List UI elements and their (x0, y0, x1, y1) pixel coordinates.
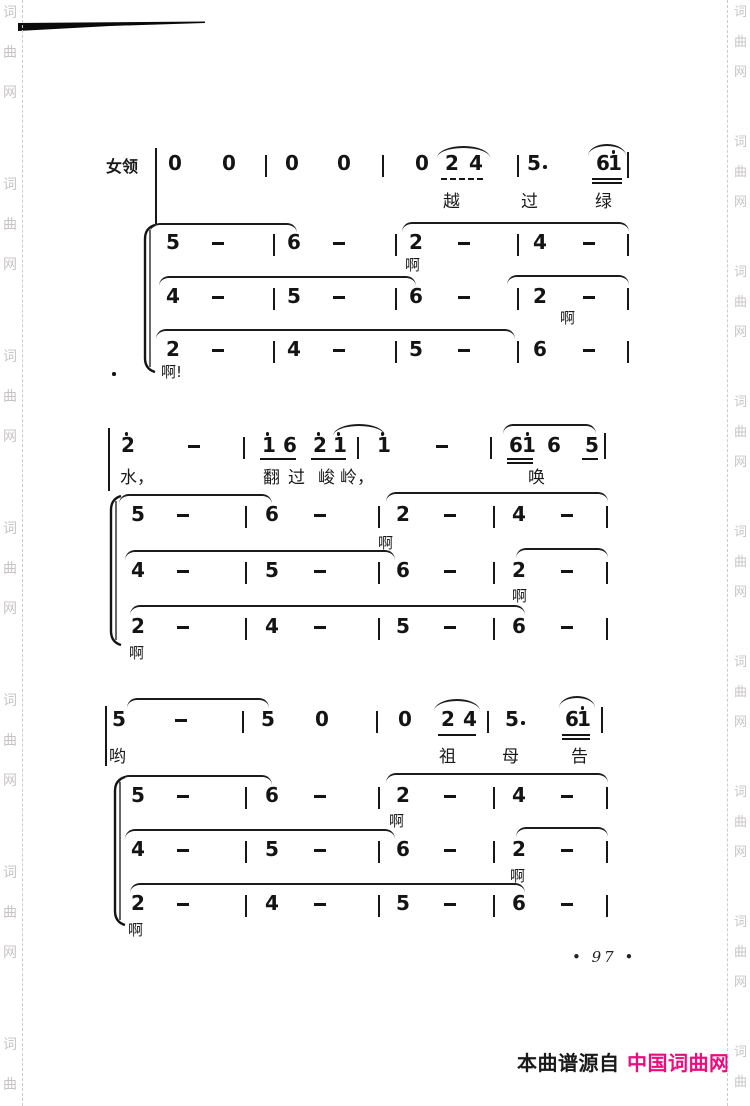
watermark-char: 词 (734, 656, 747, 669)
watermark-char: 网 (734, 196, 747, 209)
choir-brace (112, 776, 127, 926)
watermark-char: 网 (3, 946, 17, 960)
watermark-char: 词 (734, 1046, 747, 1059)
lyric-text: 啊 (405, 258, 420, 273)
sustain-dash (561, 849, 573, 852)
scan-artifact-shape (18, 22, 205, 32)
beam-underline (592, 178, 622, 180)
choir-brace (142, 224, 157, 373)
phrase-slur (402, 222, 629, 232)
note-digit: 2 (512, 560, 526, 580)
watermark-char: 网 (734, 66, 747, 79)
note-digit: 2 (512, 839, 526, 859)
watermark-char: 网 (734, 716, 747, 729)
sustain-dash (561, 795, 573, 798)
watermark-char: 曲 (3, 734, 17, 748)
watermark-char: 曲 (3, 390, 17, 404)
lyric-text: 翻 (263, 470, 280, 487)
sustain-dash (314, 626, 326, 629)
watermark-char: 曲 (734, 1076, 747, 1089)
sustain-dash (177, 626, 189, 629)
note-digit: 0 (337, 153, 351, 173)
watermark-char: 词 (3, 866, 17, 880)
barline (606, 895, 608, 917)
lyric-text: 岭， (340, 470, 374, 487)
note-digit: 4 (512, 785, 526, 805)
sustain-dash (444, 903, 456, 906)
note-digit: 2 (121, 435, 135, 455)
sustain-dash (444, 570, 456, 573)
watermark-char: 词 (734, 136, 747, 149)
lyric-text: 啊 (378, 536, 393, 551)
phrase-slur (386, 773, 608, 783)
note-digit: 6 (512, 616, 526, 636)
note-digit: 0 (315, 709, 329, 729)
sustain-dash (583, 242, 595, 245)
page-number: • 97 • (572, 948, 636, 966)
barline (395, 234, 397, 256)
tie-arc (333, 424, 385, 436)
sustain-dash (314, 570, 326, 573)
barline (395, 288, 397, 310)
barline (378, 618, 380, 640)
barline (105, 706, 107, 766)
barline (378, 841, 380, 863)
barline (493, 787, 495, 809)
watermark-char: 词 (3, 1038, 17, 1052)
barline (378, 895, 380, 917)
lyric-text: 啊 (512, 589, 527, 604)
sustain-dash (561, 570, 573, 573)
barline (493, 562, 495, 584)
phrase-slur (507, 275, 629, 285)
note-digit: 1 (377, 435, 391, 455)
note-digit: 5 (505, 709, 519, 729)
lyric-text: 祖 (439, 749, 456, 766)
barline (606, 618, 608, 640)
sustain-dash (458, 242, 470, 245)
note-digit: 5 (396, 893, 410, 913)
scan-artifact-line (0, 20, 230, 54)
watermark-char: 词 (734, 266, 747, 279)
note-digit: 5 (265, 839, 279, 859)
note-digit: 4 (265, 893, 279, 913)
note-digit: 6 (396, 560, 410, 580)
note-digit: 6 (396, 839, 410, 859)
note-digit: 0 (285, 153, 299, 173)
note-digit: 5 (527, 153, 541, 173)
barline (357, 437, 359, 459)
note-digit: 0 (222, 153, 236, 173)
barline (606, 562, 608, 584)
note-digit: 5 (287, 286, 301, 306)
lyric-text: 啊 (128, 923, 143, 938)
sustain-dash (314, 514, 326, 517)
barline (242, 711, 244, 733)
watermark-char: 词 (3, 178, 17, 192)
note-digit: 4 (265, 616, 279, 636)
watermark-char: 词 (734, 786, 747, 799)
barline (273, 288, 275, 310)
watermark-char: 网 (3, 86, 17, 100)
watermark-char: 网 (3, 430, 17, 444)
tie-arc (437, 146, 490, 158)
sustain-dash (444, 514, 456, 517)
watermark-dash-line-left (22, 0, 23, 1106)
watermark-char: 网 (734, 586, 747, 599)
sustain-dash (212, 242, 224, 245)
lyric-text: 水， (120, 470, 154, 487)
note-digit: 1 (522, 435, 536, 455)
barline (245, 841, 247, 863)
watermark-char: 曲 (734, 946, 747, 959)
note-digit: 2 (396, 504, 410, 524)
sustain-dash (561, 626, 573, 629)
phrase-slur (119, 775, 272, 785)
barline (604, 433, 606, 459)
watermark-char: 曲 (3, 46, 17, 60)
watermark-char: 曲 (734, 296, 747, 309)
note-digit: 2 (313, 435, 327, 455)
octave-dot (266, 432, 270, 436)
octave-dot (317, 432, 321, 436)
note-digit: 2 (166, 339, 180, 359)
sustain-dash (177, 903, 189, 906)
note-digit: 2 (533, 286, 547, 306)
barline (517, 155, 519, 177)
lyric-text: 唤 (528, 470, 545, 487)
phrase-slur (503, 424, 596, 434)
barline (517, 234, 519, 256)
note-digit: 6 (265, 785, 279, 805)
beam-underline (582, 458, 598, 460)
note-digit: 4 (512, 504, 526, 524)
barline (273, 234, 275, 256)
watermark-char: 曲 (3, 218, 17, 232)
phrase-slur (159, 276, 416, 286)
sustain-dash (583, 296, 595, 299)
note-digit: 6 (533, 339, 547, 359)
barline (273, 341, 275, 363)
watermark-char: 曲 (734, 166, 747, 179)
lyric-text: 啊 (560, 311, 575, 326)
barline (627, 152, 629, 178)
note-digit: 6 (287, 232, 301, 252)
barline (627, 288, 629, 310)
sustain-dash (458, 349, 470, 352)
note-digit: 2 (441, 709, 455, 729)
lyric-text: 啊 (389, 814, 404, 829)
tie-arc (434, 699, 480, 711)
lyric-text: 峻 (318, 470, 335, 487)
sustain-dash (314, 903, 326, 906)
beam-underline (441, 178, 483, 180)
lyric-text: 告 (571, 749, 588, 766)
note-digit: 6 (409, 286, 423, 306)
note-digit: 0 (415, 153, 429, 173)
watermark-char: 词 (734, 396, 747, 409)
note-digit: 4 (131, 560, 145, 580)
watermark-char: 曲 (734, 686, 747, 699)
note-digit: 5 (261, 709, 275, 729)
sustain-dash (444, 849, 456, 852)
note-digit: 5 (131, 785, 145, 805)
watermark-char: 曲 (734, 556, 747, 569)
sustain-dash (333, 242, 345, 245)
beam-underline (438, 734, 476, 736)
sustain-dash (177, 795, 189, 798)
tie-arc (588, 144, 626, 156)
beam-underline (562, 734, 590, 736)
sustain-dash (314, 849, 326, 852)
note-digit: 2 (396, 785, 410, 805)
barline (493, 841, 495, 863)
sustain-dash (561, 903, 573, 906)
watermark-char: 词 (734, 6, 747, 19)
note-digit: 6 (509, 435, 523, 455)
note-digit: 2 (409, 232, 423, 252)
watermark-char: 词 (3, 522, 17, 536)
barline (493, 506, 495, 528)
note-digit: 5 (409, 339, 423, 359)
sustain-dash (212, 296, 224, 299)
watermark-char: 曲 (734, 426, 747, 439)
watermark-char: 网 (734, 976, 747, 989)
lyric-text: 哟 (109, 749, 126, 766)
sustain-dash (333, 349, 345, 352)
note-digit: 6 (547, 435, 561, 455)
part-label: 女领 (106, 159, 138, 175)
barline (493, 618, 495, 640)
sustain-dash (175, 719, 187, 722)
barline (490, 437, 492, 459)
barline (493, 895, 495, 917)
beam-underline-2 (562, 738, 590, 740)
sustain-dash (436, 445, 448, 448)
watermark-char: 曲 (3, 562, 17, 576)
note-digit: 6 (512, 893, 526, 913)
sheet-music-page: 女领0000024561越过绿5624啊4562啊2456啊!216211616… (0, 0, 750, 1106)
watermark-char: 词 (734, 526, 747, 539)
phrase-slur (130, 883, 525, 893)
sustain-dash (458, 296, 470, 299)
barline (606, 841, 608, 863)
phrase-slur (156, 329, 515, 339)
barline (243, 437, 245, 459)
phrase-slur (386, 492, 608, 502)
phrase-slur (516, 827, 608, 837)
watermark-char: 网 (734, 846, 747, 859)
barline (245, 618, 247, 640)
watermark-char: 曲 (734, 36, 747, 49)
augmentation-dot (543, 165, 547, 169)
watermark-char: 词 (3, 350, 17, 364)
sustain-dash (333, 296, 345, 299)
barline (245, 895, 247, 917)
phrase-slur (150, 223, 297, 233)
note-digit: 4 (463, 709, 477, 729)
watermark-dash-line-right (727, 0, 728, 1106)
sustain-dash (583, 349, 595, 352)
barline (245, 506, 247, 528)
barline (395, 341, 397, 363)
barline (517, 341, 519, 363)
watermark-char: 曲 (3, 1078, 17, 1092)
phrase-slur (125, 829, 395, 839)
sustain-dash (188, 445, 200, 448)
watermark-char: 曲 (3, 906, 17, 920)
note-digit: 0 (168, 153, 182, 173)
note-digit: 2 (131, 893, 145, 913)
lyric-text: 过 (288, 470, 305, 487)
note-digit: 1 (333, 435, 347, 455)
tie-arc (559, 696, 595, 708)
watermark-char: 词 (3, 6, 17, 20)
sustain-dash (177, 514, 189, 517)
barline (517, 288, 519, 310)
note-digit: 6 (283, 435, 297, 455)
beam-underline-2 (592, 182, 622, 184)
note-digit: 5 (131, 504, 145, 524)
note-digit: 5 (265, 560, 279, 580)
note-digit: 5 (585, 435, 599, 455)
sustain-dash (177, 570, 189, 573)
watermark-char: 网 (734, 326, 747, 339)
note-digit: 5 (166, 232, 180, 252)
note-digit: 4 (287, 339, 301, 359)
sustain-dash (177, 849, 189, 852)
phrase-slur (125, 550, 395, 560)
note-digit: 0 (398, 709, 412, 729)
phrase-slur (127, 698, 269, 708)
lyric-text: 过 (521, 194, 538, 211)
lyric-text: 母 (502, 749, 519, 766)
note-digit: 6 (265, 504, 279, 524)
beam-underline (311, 458, 346, 460)
sustain-dash (444, 795, 456, 798)
note-digit: 1 (608, 153, 622, 173)
barline (487, 711, 489, 733)
watermark-char: 网 (3, 774, 17, 788)
note-digit: 4 (166, 286, 180, 306)
sustain-dash (444, 626, 456, 629)
note-digit: 1 (262, 435, 276, 455)
barline (606, 787, 608, 809)
watermark-char: 词 (734, 916, 747, 929)
barline (627, 341, 629, 363)
watermark-char: 词 (3, 694, 17, 708)
phrase-slur (119, 494, 272, 504)
barline (378, 787, 380, 809)
barline (155, 148, 157, 224)
sustain-dash (314, 795, 326, 798)
stray-ink-dot (112, 372, 116, 376)
note-digit: 4 (131, 839, 145, 859)
lyric-text: 啊 (129, 646, 144, 661)
watermark-char: 曲 (734, 816, 747, 829)
lyric-text: 绿 (595, 194, 612, 211)
octave-dot (125, 432, 129, 436)
footer-site-name: 中国词曲网 (627, 1053, 730, 1073)
augmentation-dot (521, 721, 525, 725)
lyric-text: 啊! (161, 365, 182, 380)
lyric-text: 越 (443, 194, 460, 211)
note-digit: 2 (131, 616, 145, 636)
watermark-char: 网 (734, 456, 747, 469)
barline (627, 234, 629, 256)
watermark-char: 网 (3, 602, 17, 616)
barline (606, 506, 608, 528)
barline (378, 506, 380, 528)
barline (245, 787, 247, 809)
beam-underline-2 (507, 462, 533, 464)
phrase-slur (516, 548, 608, 558)
barline (601, 707, 603, 733)
beam-underline (507, 458, 533, 460)
lyric-text: 啊 (510, 869, 525, 884)
sustain-dash (212, 349, 224, 352)
barline (108, 428, 110, 491)
barline (382, 155, 384, 177)
note-digit: 5 (396, 616, 410, 636)
phrase-slur (130, 605, 525, 615)
sustain-dash (561, 514, 573, 517)
beam-underline (260, 458, 296, 460)
barline (378, 562, 380, 584)
barline (376, 711, 378, 733)
choir-brace (108, 495, 123, 646)
watermark-char: 网 (3, 258, 17, 272)
note-digit: 5 (112, 709, 126, 729)
footer-source-label: 本曲谱源自 (517, 1053, 620, 1073)
barline (245, 562, 247, 584)
barline (265, 155, 267, 177)
note-digit: 4 (533, 232, 547, 252)
note-digit: 1 (577, 709, 591, 729)
